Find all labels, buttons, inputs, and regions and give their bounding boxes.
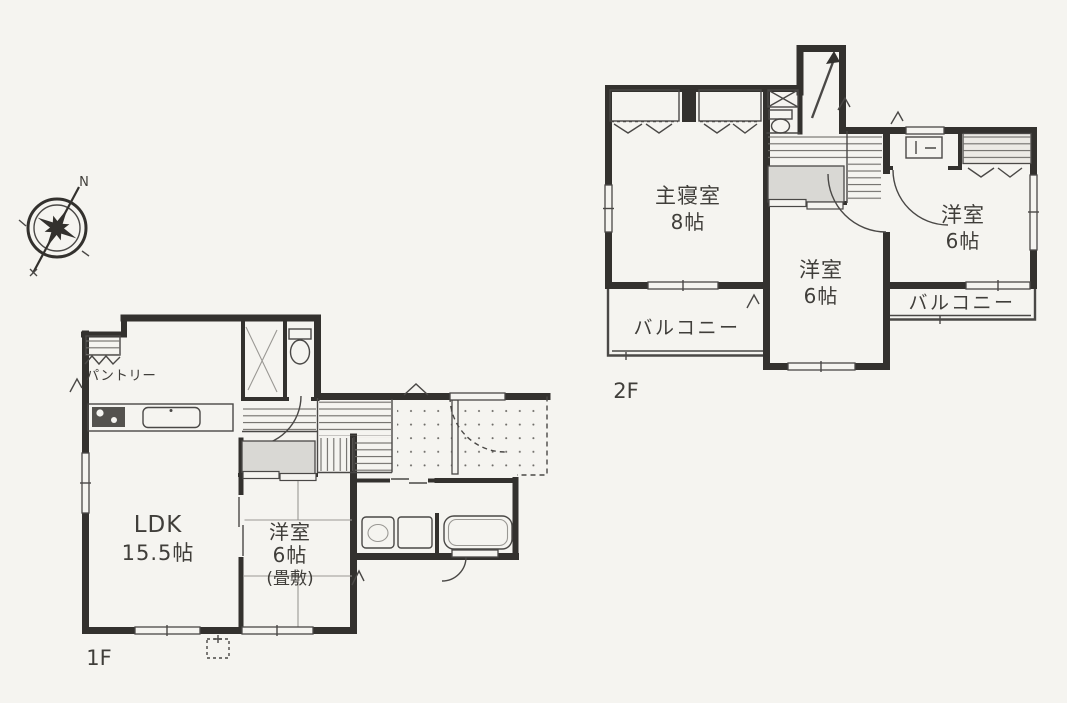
toilet-icon-1f [289,329,311,364]
stair-direction-arrow [812,62,833,118]
door-mark-balcony-2f [747,295,759,308]
room-label-master-bedroom: 主寝室 [655,184,721,208]
toilet-icon-2f [769,110,792,133]
ldk-tatami-partition [238,495,245,557]
shaft-box-2f [768,90,798,107]
room-size-tatami: 6帖 [273,543,308,567]
washbasin-icon [362,517,394,548]
compass-north-label: N [79,175,89,190]
room-label-west-right: 洋室 [941,203,985,227]
front-door [450,393,505,400]
closet-master-right [699,90,761,133]
floor-1f-plan: LDK 15.5帖 洋室 6帖 (畳敷) パントリー 1F [70,318,547,670]
floor-plan-scan: N [0,0,1067,703]
room-label-ldk: LDK [134,512,183,538]
label-floor-2f: 2F [613,379,638,403]
compass-rose: N [19,175,89,276]
door-mark-kitchen-side [70,379,82,392]
compass-east-tick [82,251,89,256]
compass-west-tick [19,220,26,226]
hall-niche-2f [906,137,942,158]
pantry-folding-door [85,356,120,364]
floor-plan-canvas: N [0,0,1067,703]
door-mark-hall-2f [891,112,903,124]
back-door-arc [442,557,466,581]
entrance-step [452,400,458,474]
closet-right-2f [963,134,1031,178]
room-size-master-bedroom: 8帖 [671,210,706,234]
floor-2f-plan: 主寝室 8帖 洋室 6帖 洋室 6帖 バルコニー バルコニー 2F [603,49,1039,404]
room-label-tatami: 洋室 [269,520,311,544]
entrance-hall [397,397,541,474]
bathroom [444,516,512,557]
closet-tatami-1f [240,441,316,481]
closet-master-left [610,90,679,133]
washing-machine-icon [398,517,432,548]
label-floor-1f: 1F [86,646,111,670]
stove-icon [92,407,125,427]
storage-closet-1f [246,327,277,392]
kitchen-counter [88,404,233,431]
label-pantry: パントリー [86,368,157,384]
door-arc-right-room-2f [893,170,948,225]
washroom [362,477,432,548]
terrace-step [207,635,229,658]
label-balcony-right: バルコニー [908,292,1015,314]
room-label-west-mid: 洋室 [799,258,843,282]
room-note-tatami: (畳敷) [266,569,313,589]
pantry [85,336,120,364]
room-size-west-right: 6帖 [946,229,981,253]
closet-mid-2f [768,166,844,209]
bathtub-icon [444,516,512,549]
label-balcony-left: バルコニー [633,317,740,339]
room-size-ldk: 15.5帖 [122,541,195,565]
stair-arrow-head [826,51,840,64]
room-size-west-mid: 6帖 [804,284,839,308]
